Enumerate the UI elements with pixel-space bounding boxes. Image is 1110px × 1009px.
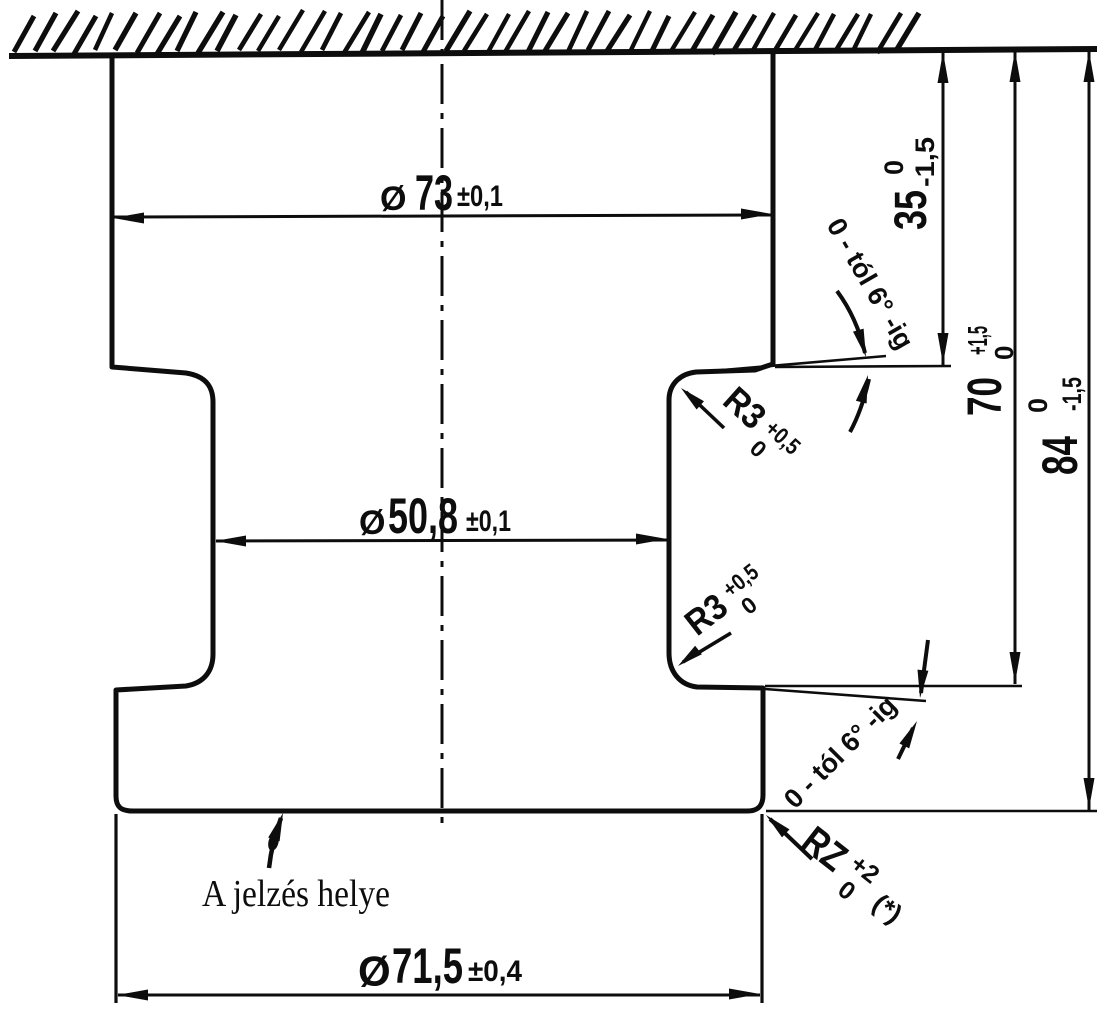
- svg-text:70: 70: [959, 377, 1012, 416]
- svg-text:Ø: Ø: [380, 180, 406, 218]
- svg-text:A jelzés helye: A jelzés helye: [202, 873, 390, 915]
- svg-text:0: 0: [879, 160, 909, 175]
- svg-text:±0,1: ±0,1: [457, 180, 503, 213]
- svg-text:±0,4: ±0,4: [468, 955, 522, 988]
- svg-text:Ø: Ø: [358, 948, 391, 995]
- svg-text:35: 35: [885, 190, 936, 230]
- svg-text:84: 84: [1032, 436, 1088, 475]
- svg-text:50,8: 50,8: [388, 488, 458, 544]
- svg-text:73: 73: [415, 165, 453, 221]
- svg-text:0: 0: [1023, 398, 1053, 413]
- svg-text:±0,1: ±0,1: [466, 505, 511, 538]
- svg-text:Ø: Ø: [359, 504, 385, 542]
- svg-text:-1,5: -1,5: [910, 137, 940, 187]
- svg-text:0: 0: [989, 346, 1019, 360]
- svg-text:-1,5: -1,5: [1057, 377, 1087, 411]
- svg-text:71,5: 71,5: [392, 938, 463, 994]
